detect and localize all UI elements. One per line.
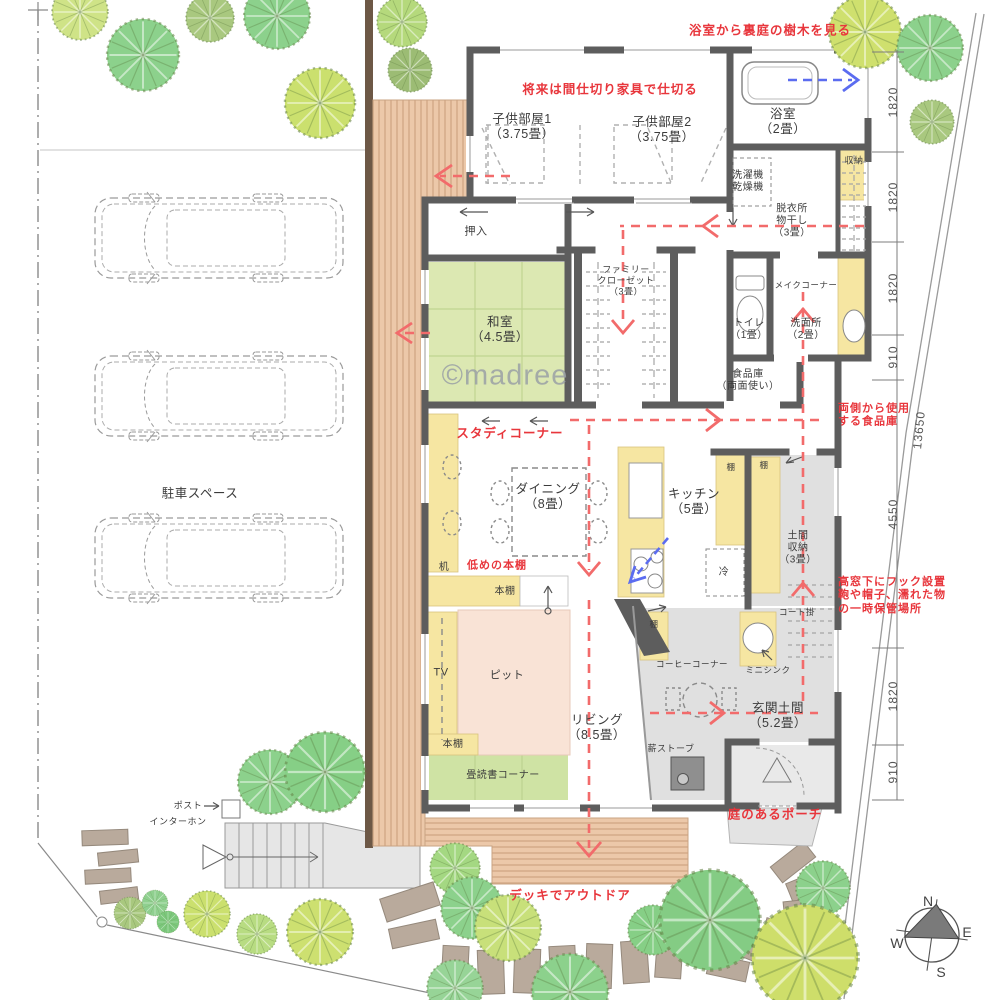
floor-plan-canvas: 浴室から裏庭の樹木を見る 将来は間仕切り家具で仕切る 子供部屋1（3.75畳） … [0,0,1000,1000]
label-bathroom: 浴室（2畳） [760,107,806,138]
toilet-tank [736,276,764,290]
label-tatami-reading: 畳読書コーナー [466,770,540,782]
label-oshiire: 押入 [465,225,488,238]
watermark: ©madree [442,358,569,393]
cooktop [631,549,663,593]
annotation-deck-outdoor: デッキでアウトドア [509,888,631,903]
label-shelf-3: 棚 [649,619,658,629]
label-pit: ピット [490,669,525,682]
shelf-column-2 [750,457,780,593]
annotation-bath-view: 浴室から裏庭の樹木を見る [689,23,851,38]
dim-1820-b: 1820 [886,182,900,213]
annotation-future-partition: 将来は間仕切り家具で仕切る [522,82,698,97]
label-intercom: インターホン [149,817,206,828]
label-dressing-room: 脱衣所物干し（3畳） [773,204,811,241]
compass-e: E [962,924,971,940]
dim-1820-d: 1820 [886,681,900,712]
label-mini-sink: ミニシンク [745,665,790,675]
annotation-study-corner: スタディコーナー [456,426,563,441]
label-doma-storage: 土間収納（3畳） [779,531,817,568]
dim-4550: 4550 [886,499,900,530]
label-storage-top: 収納 [844,156,863,167]
kitchen-sink [629,463,662,518]
label-washitsu: 和室（4.5畳） [471,315,529,346]
label-shelf-2: 棚 [759,460,768,470]
label-child-room-1: 子供部屋1（3.75畳） [489,112,554,143]
label-coffee-corner: コーヒーコーナー [656,659,728,669]
label-coat-rack: コート掛 [779,607,815,617]
annotation-garden-porch: 庭のあるポーチ [728,807,823,822]
vanity-counter [838,258,868,358]
dim-1820-a: 1820 [886,87,900,118]
label-parking: 駐車スペース [162,486,239,501]
label-wood-stove: 薪ストーブ [648,744,695,755]
label-pantry: 食品庫（両面使い） [717,369,780,393]
porch-floor [728,745,838,806]
label-desk: 机 [439,562,450,574]
label-living: リビング（8.5畳） [568,713,626,744]
label-kitchen: キッチン（5畳） [668,487,720,518]
dim-1820-c: 1820 [886,273,900,304]
label-family-closet: ファミリークローゼット（3畳） [597,265,654,298]
label-bookshelf-a: 本棚 [495,586,516,598]
label-dining: ダイニング（8畳） [515,482,580,513]
parking-cars [95,192,343,604]
study-desk [428,414,458,572]
label-child-room-2: 子供部屋2（3.75畳） [629,115,694,146]
annotation-pantry-both-sides: 両側から使用する食品庫 [838,403,910,430]
dim-910-a: 910 [886,345,900,368]
floor-plan-svg [0,0,1000,1000]
label-genkan: 玄関土間（5.2畳） [749,701,807,732]
bathtub [742,62,818,104]
label-makeup-corner: メイクコーナー [775,280,838,290]
compass-w: W [890,935,903,951]
label-shelf-1: 棚 [726,462,735,472]
mini-sink [743,623,773,653]
dim-910-b: 910 [886,760,900,783]
label-post: ポスト [174,801,203,812]
compass-s: S [936,964,945,980]
compass-n: N [923,893,933,909]
post-box [222,800,240,818]
label-washroom: 洗面所（2畳） [787,318,825,342]
label-bookshelf-b: 本棚 [443,739,464,751]
vanity-sink [843,310,865,342]
label-fridge: 冷 [719,567,730,579]
label-tv: TV [433,666,448,679]
label-laundry: 洗濯機乾燥機 [732,170,764,194]
wood-stove [671,757,704,790]
label-toilet: トイレ（1畳） [730,318,768,342]
annotation-low-bookshelf: 低めの本棚 [467,559,527,572]
annotation-hooks-note: 高窓下にフック設置鞄や帽子、濡れた物の一時保管場所 [838,576,946,616]
